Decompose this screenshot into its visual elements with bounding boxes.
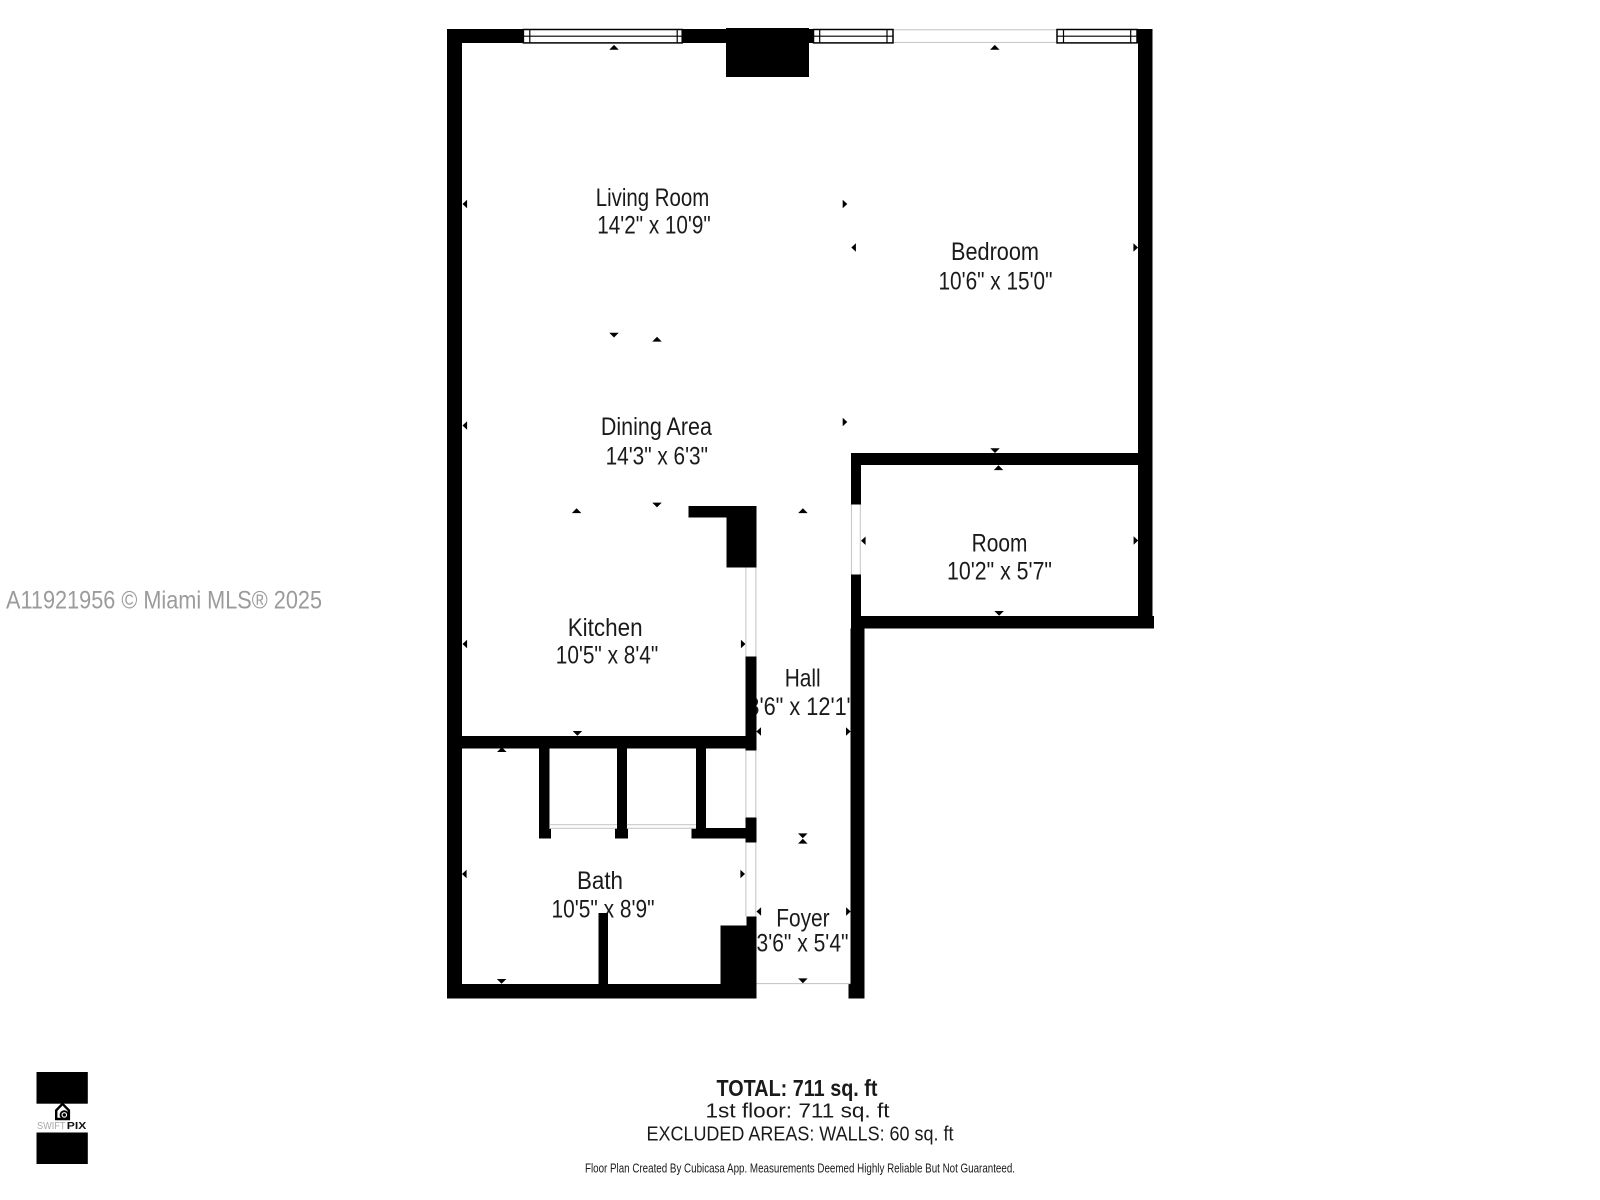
svg-text:14'3" x 6'3": 14'3" x 6'3" [606, 443, 708, 471]
svg-text:1st floor: 711 sq. ft: 1st floor: 711 sq. ft [706, 1100, 890, 1123]
svg-text:10'5" x 8'4": 10'5" x 8'4" [556, 642, 659, 670]
svg-text:EXCLUDED AREAS: WALLS: 60 sq.: EXCLUDED AREAS: WALLS: 60 sq. ft [647, 1123, 954, 1146]
svg-text:3'6" x 12'1": 3'6" x 12'1" [747, 693, 854, 721]
svg-text:3'6" x 5'4": 3'6" x 5'4" [757, 930, 849, 958]
svg-text:A11921956 © Miami MLS® 2025: A11921956 © Miami MLS® 2025 [6, 587, 322, 615]
svg-text:10'2" x 5'7": 10'2" x 5'7" [947, 558, 1052, 586]
svg-text:TOTAL: 711 sq. ft: TOTAL: 711 sq. ft [717, 1075, 878, 1101]
svg-text:PIX: PIX [67, 1121, 87, 1132]
svg-text:Bedroom: Bedroom [951, 238, 1039, 266]
svg-text:Floor Plan Created By Cubicasa: Floor Plan Created By Cubicasa App. Meas… [585, 1162, 1015, 1176]
svg-text:Living Room: Living Room [596, 184, 710, 212]
svg-text:Bath: Bath [577, 867, 623, 895]
svg-text:Foyer: Foyer [776, 904, 829, 932]
svg-text:10'6" x 15'0": 10'6" x 15'0" [939, 267, 1053, 295]
svg-text:Dining Area: Dining Area [601, 413, 712, 441]
svg-text:Room: Room [972, 529, 1028, 557]
svg-text:Hall: Hall [785, 664, 821, 692]
svg-text:SWIFT: SWIFT [37, 1121, 66, 1132]
svg-text:Kitchen: Kitchen [568, 614, 643, 642]
svg-text:14'2" x 10'9": 14'2" x 10'9" [597, 212, 710, 240]
